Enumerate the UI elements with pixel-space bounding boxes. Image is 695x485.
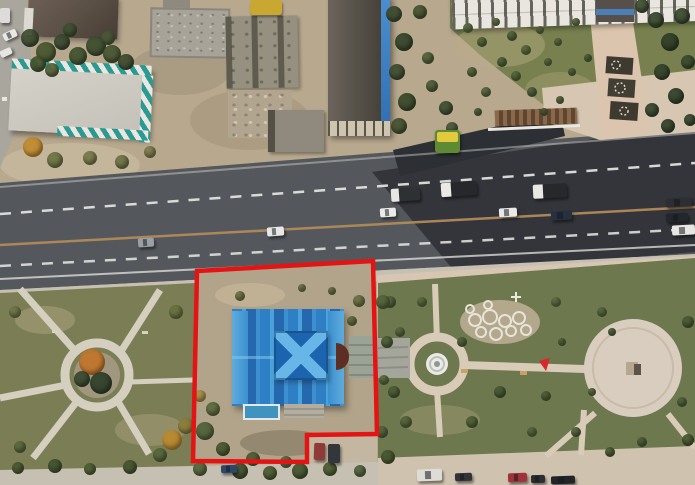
car-windshield [679, 226, 685, 233]
dump-truck [533, 183, 568, 199]
truck-cab [391, 188, 400, 202]
car-white [672, 224, 695, 235]
pad-step [378, 367, 408, 368]
tree [74, 371, 90, 387]
tree [83, 151, 97, 165]
bush [584, 54, 592, 62]
car-white [267, 226, 285, 236]
tree [648, 12, 664, 28]
church-steps [284, 404, 324, 418]
path [581, 410, 584, 455]
tree [263, 466, 277, 480]
tree [439, 101, 453, 115]
bush [481, 87, 491, 97]
bush [400, 416, 412, 428]
bush [637, 437, 647, 447]
tree [47, 152, 63, 168]
path [129, 380, 193, 382]
bush [395, 327, 405, 337]
bush [477, 37, 487, 47]
bush [194, 390, 206, 402]
tree [661, 119, 675, 133]
bush [497, 57, 507, 67]
car-windshield [514, 474, 519, 480]
tree [48, 459, 62, 473]
car-windshield [424, 471, 431, 480]
demolished-building [150, 7, 231, 58]
bush [494, 386, 506, 398]
tree [63, 23, 77, 37]
bush [347, 316, 357, 326]
tree [178, 418, 194, 434]
ruined-annex [268, 110, 324, 152]
church-terrace [349, 336, 374, 378]
bush [572, 18, 580, 26]
car-windshield [460, 474, 464, 480]
car-windshield [504, 209, 509, 216]
bench [142, 331, 148, 334]
tree [162, 430, 182, 450]
car-windshield [385, 209, 389, 216]
tree [90, 372, 112, 394]
bush [235, 291, 245, 301]
bush [298, 284, 306, 292]
bench [52, 330, 58, 333]
truck-cab [441, 183, 452, 198]
bush [677, 397, 687, 407]
pergola-benches [495, 108, 578, 127]
tree [681, 55, 695, 69]
car-dark-blue [551, 210, 572, 220]
car-windshield [535, 476, 539, 482]
bush [388, 386, 400, 398]
bush [551, 297, 561, 307]
tree [196, 422, 214, 440]
bush [466, 416, 478, 428]
bush [426, 80, 438, 92]
bush [422, 52, 434, 64]
car-windshield [272, 228, 277, 235]
parked-car-dark [455, 473, 472, 482]
parked-car-red [314, 443, 326, 460]
bush [527, 427, 537, 437]
bush [457, 337, 467, 347]
bush [682, 434, 694, 446]
dump-truck [391, 187, 421, 202]
car-windshield [226, 466, 230, 472]
street-marking [2, 97, 7, 101]
excavator [250, 0, 282, 15]
car-windshield [6, 32, 12, 39]
pad-step [378, 347, 408, 348]
tree [381, 450, 395, 464]
tree [668, 88, 684, 104]
bush [544, 58, 552, 66]
bush [684, 114, 695, 126]
bush [521, 45, 531, 55]
bush [558, 338, 566, 346]
tree [292, 463, 308, 479]
roller-cabin [437, 132, 458, 142]
church-central-tower-x-roof [274, 331, 328, 380]
tree [413, 5, 427, 19]
tree [389, 64, 405, 80]
bush [507, 31, 517, 41]
bush [354, 465, 366, 477]
white-cross-marker [511, 296, 521, 298]
car-windshield [674, 199, 681, 206]
road-roller [435, 130, 460, 153]
car-windshield [143, 239, 147, 246]
fountain-center [434, 361, 440, 367]
bush [554, 38, 562, 46]
tree [216, 442, 230, 456]
building-ruins [225, 15, 298, 88]
bush [588, 388, 596, 396]
tree [391, 118, 407, 134]
car-white [499, 208, 517, 218]
bush [463, 23, 473, 33]
tree [645, 103, 659, 117]
bush [379, 375, 389, 385]
path [437, 390, 440, 437]
tree [674, 8, 690, 24]
parked-truck-white [417, 469, 442, 482]
warehouse-teal-striped [8, 60, 151, 137]
pad-step [378, 357, 408, 358]
tree [246, 452, 260, 466]
tree [69, 47, 87, 65]
car-dark [666, 212, 688, 222]
tree [398, 93, 416, 111]
plot-soil-light [215, 283, 285, 307]
bush [571, 427, 581, 437]
bush [467, 67, 477, 77]
bush [9, 306, 21, 318]
bush [511, 71, 521, 81]
tree [45, 63, 59, 77]
tree [23, 137, 43, 157]
bush [605, 447, 615, 457]
church-porch [243, 404, 280, 420]
bush [540, 108, 548, 116]
parked-car-blue [221, 465, 237, 474]
bench [461, 369, 468, 373]
car-windshield [558, 477, 564, 483]
tree [193, 462, 207, 476]
bush [84, 463, 96, 475]
entrance-tower [596, 0, 634, 22]
bush [14, 441, 26, 453]
bush [474, 108, 482, 116]
tree [115, 155, 129, 169]
tree [101, 31, 115, 45]
bush [280, 456, 292, 468]
bush [353, 295, 365, 307]
tree [21, 29, 39, 47]
parked-van-white [0, 8, 10, 23]
bush [12, 462, 24, 474]
bush [608, 328, 616, 336]
car-windshield [672, 214, 678, 221]
dump-truck [441, 181, 478, 197]
tree [153, 448, 167, 462]
bush [527, 87, 537, 97]
aerial-photo-scene [0, 0, 695, 485]
tree [123, 460, 137, 474]
truck-cab [533, 184, 543, 198]
bush [556, 96, 564, 104]
bench [520, 371, 527, 375]
bush [417, 297, 427, 307]
bush [328, 287, 336, 295]
tree [30, 56, 46, 72]
parked-car-dark [328, 444, 340, 463]
car-grey [138, 237, 155, 247]
parked-car-red [508, 473, 527, 483]
bush [381, 336, 393, 348]
tree [169, 305, 183, 319]
path [435, 284, 437, 340]
tree [661, 33, 679, 51]
bush [144, 146, 156, 158]
bush [682, 316, 694, 328]
building-end-wall [328, 121, 390, 136]
tree [118, 54, 134, 70]
tree [376, 295, 390, 309]
parked-car-dark [551, 476, 575, 485]
long-building-blue-edge [328, 0, 390, 136]
tree [206, 402, 220, 416]
car-white [380, 207, 397, 217]
bush [536, 26, 544, 34]
bush [376, 426, 388, 438]
blue-band [596, 9, 634, 15]
tree [386, 6, 402, 22]
car-dark [666, 197, 692, 207]
path [462, 365, 585, 369]
tree [654, 64, 670, 80]
bush [597, 307, 607, 317]
tree [395, 33, 413, 51]
bush [492, 18, 500, 26]
bush [541, 391, 551, 401]
parked-car-dark [531, 475, 545, 483]
bush [568, 68, 576, 76]
monument-shadow [634, 364, 641, 375]
tree [323, 462, 337, 476]
car-windshield [557, 212, 563, 219]
